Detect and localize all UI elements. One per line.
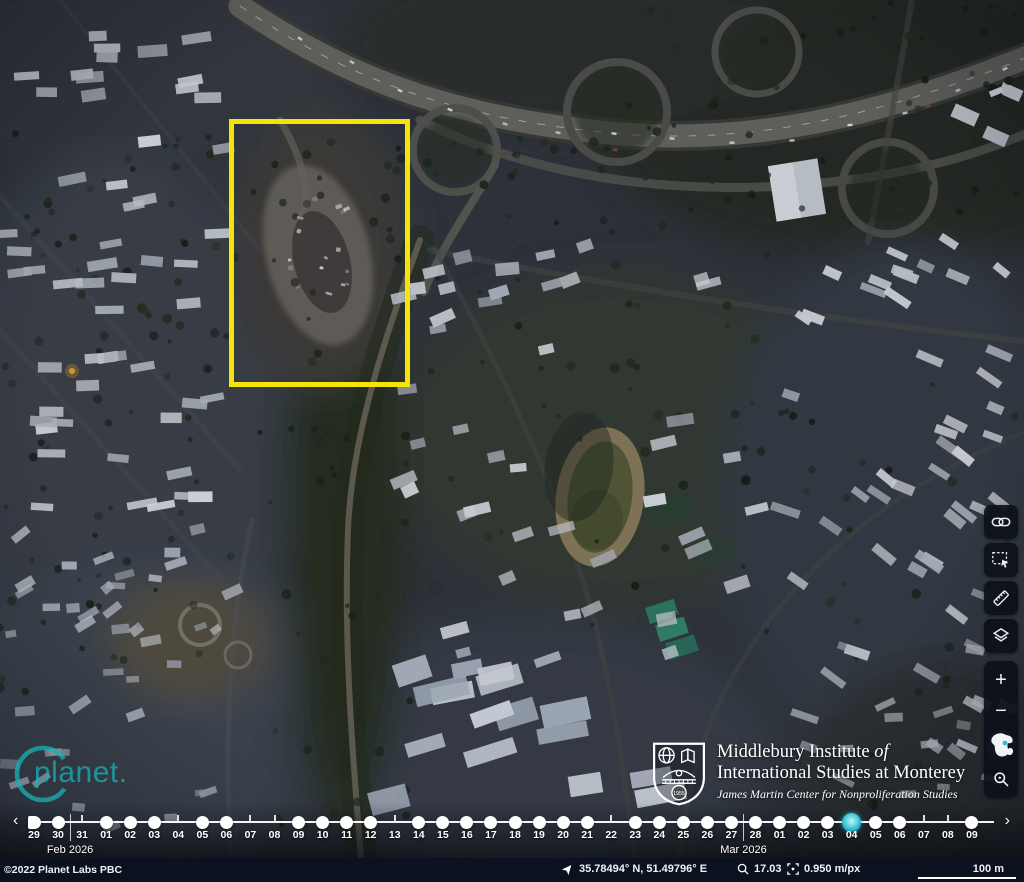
- timeline-date-label: 29: [22, 829, 46, 841]
- globe-icon: [984, 728, 1018, 762]
- select-area-button[interactable]: [984, 543, 1018, 577]
- zoom-controls: + −: [984, 661, 1018, 798]
- timeline-date-dot[interactable]: [340, 816, 353, 829]
- timeline-date-dot[interactable]: [484, 816, 497, 829]
- satellite-viewer: planet. 1955 Middlebury Institute of: [0, 0, 1024, 882]
- timeline-date-label: 31: [70, 829, 94, 841]
- timeline-date-label: 11: [335, 829, 359, 841]
- timeline-date-dot[interactable]: [292, 816, 305, 829]
- timeline-date-label: 27: [719, 829, 743, 841]
- layers-icon: [991, 626, 1011, 646]
- timeline-date-label: 03: [816, 829, 840, 841]
- timeline-date-tick: [394, 815, 396, 821]
- timeline-date-label: 04: [840, 829, 864, 841]
- magnifier-icon: [992, 770, 1011, 789]
- timeline-date-label: 02: [118, 829, 142, 841]
- timeline-date-label: 15: [431, 829, 455, 841]
- timeline-date-label: 18: [503, 829, 527, 841]
- copyright-text: ©2022 Planet Labs PBC: [4, 864, 122, 876]
- timeline-date-label: 23: [623, 829, 647, 841]
- timeline-date-tick: [947, 815, 949, 821]
- globe-button[interactable]: [984, 726, 1018, 764]
- timeline-date-label: 06: [214, 829, 238, 841]
- timeline-date-label: 10: [311, 829, 335, 841]
- timeline-date-dot[interactable]: [364, 816, 377, 829]
- resolution-icon: [787, 863, 799, 875]
- layers-button[interactable]: [984, 619, 1018, 653]
- scale-label: 100 m: [918, 863, 1016, 875]
- timeline-date-dot[interactable]: [100, 816, 113, 829]
- timeline-date-label: 26: [695, 829, 719, 841]
- timeline-date-label: 05: [190, 829, 214, 841]
- timeline-date-label: 04: [166, 829, 190, 841]
- timeline-date-label: 07: [238, 829, 262, 841]
- timeline-month-separator: [70, 814, 71, 841]
- timeline-date-dot[interactable]: [773, 816, 786, 829]
- zoom-in-button[interactable]: +: [984, 664, 1018, 695]
- timeline-month-separator: [743, 814, 744, 841]
- timeline-date-dot[interactable]: [749, 816, 762, 829]
- timeline-date-dot[interactable]: [28, 816, 41, 829]
- timeline-month-label: Mar 2026: [720, 844, 766, 856]
- timeline-date-label: 05: [864, 829, 888, 841]
- search-button[interactable]: [984, 764, 1018, 795]
- timeline-month-label: Feb 2026: [47, 844, 93, 856]
- timeline-date-label: 14: [407, 829, 431, 841]
- timeline-date-label: 06: [888, 829, 912, 841]
- magnifier-icon: [737, 863, 749, 875]
- timeline-date-tick: [274, 815, 276, 821]
- timeline-next-button[interactable]: ›: [1005, 813, 1010, 829]
- timeline-date-dot[interactable]: [965, 816, 978, 829]
- timeline-date-label: 22: [599, 829, 623, 841]
- timeline-date-dot[interactable]: [797, 816, 810, 829]
- timeline-date-dot[interactable]: [412, 816, 425, 829]
- timeline-date-dot[interactable]: [316, 816, 329, 829]
- timeline-date-label: 02: [792, 829, 816, 841]
- coordinates-readout: 35.78494° N, 51.49796° E: [562, 863, 707, 875]
- timeline-date-dot[interactable]: [196, 816, 209, 829]
- timeline-date-dot[interactable]: [460, 816, 473, 829]
- map-toolbar: [984, 505, 1018, 653]
- timeline-date-label: 09: [287, 829, 311, 841]
- timeline-date-label: 24: [647, 829, 671, 841]
- timeline-date-label: 17: [479, 829, 503, 841]
- timeline-date-tick: [923, 815, 925, 821]
- timeline-date-dot[interactable]: [869, 816, 882, 829]
- timeline-date-dot[interactable]: [220, 816, 233, 829]
- timeline-date-dot[interactable]: [725, 816, 738, 829]
- timeline-date-dot[interactable]: [701, 816, 714, 829]
- timeline-date-label: 21: [575, 829, 599, 841]
- resolution-readout: 0.950 m/px: [787, 863, 860, 875]
- timeline-date-label: 25: [671, 829, 695, 841]
- timeline-date-label: 20: [551, 829, 575, 841]
- location-arrow-icon: [562, 863, 574, 875]
- timeline-date-label: 08: [936, 829, 960, 841]
- share-link-button[interactable]: [984, 505, 1018, 539]
- timeline-date-label: 07: [912, 829, 936, 841]
- selection-icon: [991, 550, 1011, 570]
- link-icon: [991, 512, 1011, 532]
- timeline-date-label: 03: [142, 829, 166, 841]
- timeline-date-tick: [81, 815, 83, 821]
- timeline-date-dot[interactable]: [436, 816, 449, 829]
- timeline-date-dot[interactable]: [653, 816, 666, 829]
- timeline-date-label: 16: [455, 829, 479, 841]
- timeline-date-tick: [249, 815, 251, 821]
- timeline-date-label: 09: [960, 829, 984, 841]
- map-canvas[interactable]: [0, 0, 1024, 882]
- timeline-date-dot[interactable]: [148, 816, 161, 829]
- timeline-date-label: 01: [94, 829, 118, 841]
- timeline-date-label: 08: [263, 829, 287, 841]
- zoom-level-readout: 17.03: [737, 863, 782, 875]
- timeline-date-label: 01: [768, 829, 792, 841]
- timeline-date-dot[interactable]: [629, 816, 642, 829]
- timeline-date-dot[interactable]: [557, 816, 570, 829]
- measure-button[interactable]: [984, 581, 1018, 615]
- zoom-out-button[interactable]: −: [984, 695, 1018, 726]
- timeline: ‹ › 293031010203040506070809101112131415…: [0, 802, 1024, 858]
- timeline-date-dot[interactable]: [821, 816, 834, 829]
- timeline-date-dot[interactable]: [52, 816, 65, 829]
- timeline-date-label: 19: [527, 829, 551, 841]
- annotation-rectangle: [229, 119, 410, 387]
- scale-bar: 100 m: [918, 863, 1016, 879]
- timeline-date-dot[interactable]: [509, 816, 522, 829]
- status-bar: ©2022 Planet Labs PBC 35.78494° N, 51.49…: [0, 858, 1024, 882]
- scale-line: [918, 877, 1016, 879]
- timeline-date-tick: [177, 815, 179, 821]
- timeline-date-label: 12: [359, 829, 383, 841]
- ruler-icon: [991, 588, 1011, 608]
- timeline-date-label: 28: [744, 829, 768, 841]
- timeline-prev-button[interactable]: ‹: [13, 813, 18, 829]
- timeline-date-label: 30: [46, 829, 70, 841]
- timeline-date-label: 13: [383, 829, 407, 841]
- timeline-date-dot[interactable]: [677, 816, 690, 829]
- timeline-date-tick: [610, 815, 612, 821]
- timeline-date-dot[interactable]: [533, 816, 546, 829]
- timeline-date-dot[interactable]: [581, 816, 594, 829]
- timeline-date-dot[interactable]: [124, 816, 137, 829]
- timeline-date-dot[interactable]: [893, 816, 906, 829]
